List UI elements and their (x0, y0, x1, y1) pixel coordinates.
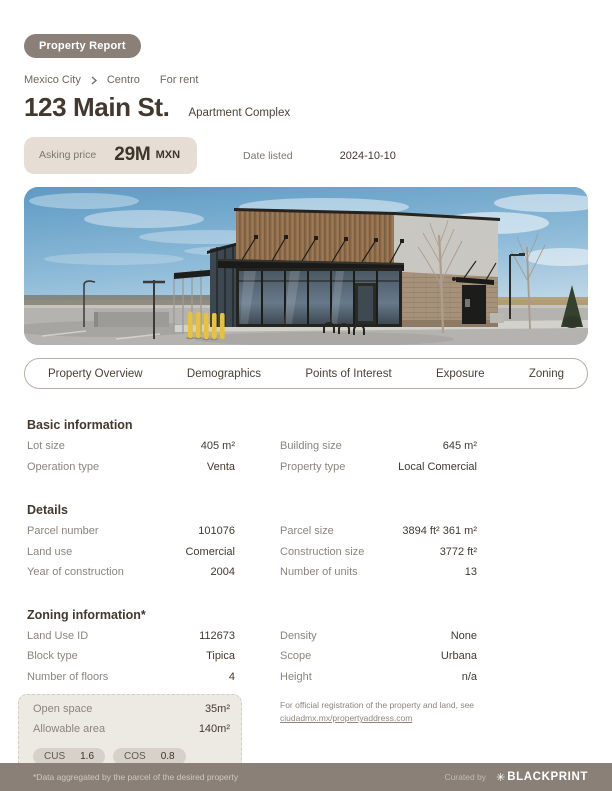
info-label: Height (280, 671, 312, 683)
info-label: Parcel number (27, 525, 99, 537)
info-value: 3894 ft² 361 m² (402, 525, 477, 537)
cus-label: CUS (44, 751, 65, 762)
listing-type-label: For rent (160, 74, 199, 86)
report-type-badge: Property Report (24, 34, 141, 58)
info-label: Year of construction (27, 566, 124, 578)
curated-by-label: Curated by (444, 772, 486, 782)
info-row: Parcel size 3894 ft² 361 m² (280, 525, 477, 546)
registration-link[interactable]: ciudadmx.mx/propertyaddress.com (280, 713, 412, 723)
info-value: n/a (462, 671, 477, 683)
info-value: 3772 ft² (440, 546, 477, 558)
cos-value: 0.8 (161, 751, 175, 762)
asking-price-currency: MXN (156, 149, 180, 161)
report-tabs: Property Overview Demographics Points of… (24, 358, 588, 389)
info-label: Land Use ID (27, 630, 88, 642)
info-label: Land use (27, 546, 72, 558)
official-registration-note: For official registration of the propert… (280, 699, 485, 725)
info-row: Property type Local Comercial (280, 461, 477, 482)
info-label: Block type (27, 650, 78, 662)
info-row: Height n/a (280, 671, 477, 692)
breadcrumb-district[interactable]: Centro (107, 74, 140, 86)
info-label: Building size (280, 440, 342, 452)
property-photo-illustration (24, 187, 588, 345)
breadcrumb: Mexico City Centro For rent (24, 74, 588, 86)
info-value: 140m² (199, 723, 230, 735)
tab-points-of-interest[interactable]: Points of Interest (301, 368, 395, 380)
section-heading: Basic information (27, 418, 588, 432)
info-row: Land Use ID 112673 (27, 630, 235, 651)
info-value: 645 m² (443, 440, 477, 452)
info-label: Lot size (27, 440, 65, 452)
section-basic-information: Basic information Lot size 405 m² Operat… (24, 418, 588, 481)
info-row: Block type Tipica (27, 650, 235, 671)
property-photo (24, 187, 588, 345)
info-row: Construction size 3772 ft² (280, 546, 477, 567)
tab-exposure[interactable]: Exposure (432, 368, 489, 380)
asking-price-value: 29M (114, 144, 150, 166)
info-row: Lot size 405 m² (27, 440, 235, 461)
info-label: Open space (33, 703, 92, 715)
info-label: Density (280, 630, 317, 642)
info-row: Year of construction 2004 (27, 566, 235, 587)
info-row: Number of floors 4 (27, 671, 235, 692)
info-value: 4 (229, 671, 235, 683)
chevron-right-icon (90, 76, 98, 85)
info-value: Urbana (441, 650, 477, 662)
info-row: Allowable area 140m² (33, 723, 230, 743)
info-value: Venta (207, 461, 235, 473)
info-value: Tipica (206, 650, 235, 662)
info-label: Operation type (27, 461, 99, 473)
footer: *Data aggregated by the parcel of the de… (0, 763, 612, 791)
title-row: 123 Main St. Apartment Complex (24, 92, 588, 123)
price-row: Asking price 29M MXN Date listed 2024-10… (24, 137, 588, 174)
section-zoning-information: Zoning information* Land Use ID 112673 B… (24, 608, 588, 776)
info-value: 2004 (211, 566, 235, 578)
date-listed-label: Date listed (243, 150, 293, 162)
asking-price-label: Asking price (39, 149, 96, 161)
info-value: None (451, 630, 477, 642)
info-row: Open space 35m² (33, 703, 230, 723)
info-value: 35m² (205, 703, 230, 715)
info-row: Land use Comercial (27, 546, 235, 567)
info-row: Scope Urbana (280, 650, 477, 671)
info-value: 112673 (199, 630, 235, 642)
info-row: Number of units 13 (280, 566, 477, 587)
info-label: Parcel size (280, 525, 334, 537)
info-value: Local Comercial (398, 461, 477, 473)
page-title: 123 Main St. (24, 92, 169, 123)
info-value: Comercial (185, 546, 235, 558)
cus-value: 1.6 (80, 751, 94, 762)
info-label: Number of floors (27, 671, 108, 683)
blackprint-logo: ✳ BLACKPRINT (496, 771, 588, 784)
date-listed-value: 2024-10-10 (340, 150, 396, 162)
info-row: Density None (280, 630, 477, 651)
blackprint-asterisk-icon: ✳ (496, 771, 505, 784)
info-value: 101076 (198, 525, 235, 537)
info-value: 13 (465, 566, 477, 578)
info-label: Number of units (280, 566, 358, 578)
info-label: Property type (280, 461, 345, 473)
tab-demographics[interactable]: Demographics (183, 368, 265, 380)
cos-label: COS (124, 751, 146, 762)
info-label: Scope (280, 650, 311, 662)
footer-disclaimer: *Data aggregated by the parcel of the de… (33, 772, 238, 782)
tab-zoning[interactable]: Zoning (525, 368, 568, 380)
info-row: Operation type Venta (27, 461, 235, 482)
section-details: Details Parcel number 101076 Land use Co… (24, 503, 588, 587)
asking-price-box: Asking price 29M MXN (24, 137, 197, 174)
info-value: 405 m² (201, 440, 235, 452)
info-label: Construction size (280, 546, 364, 558)
info-row: Building size 645 m² (280, 440, 477, 461)
note-text: For official registration of the propert… (280, 700, 474, 710)
blackprint-brand-name: BLACKPRINT (507, 771, 588, 783)
breadcrumb-city[interactable]: Mexico City (24, 74, 81, 86)
section-heading: Details (27, 503, 588, 517)
info-row: Parcel number 101076 (27, 525, 235, 546)
report-page: Property Report Mexico City Centro For r… (0, 0, 612, 775)
info-label: Allowable area (33, 723, 105, 735)
section-heading: Zoning information* (27, 608, 588, 622)
property-category-label: Apartment Complex (188, 107, 290, 119)
tab-property-overview[interactable]: Property Overview (44, 368, 147, 380)
